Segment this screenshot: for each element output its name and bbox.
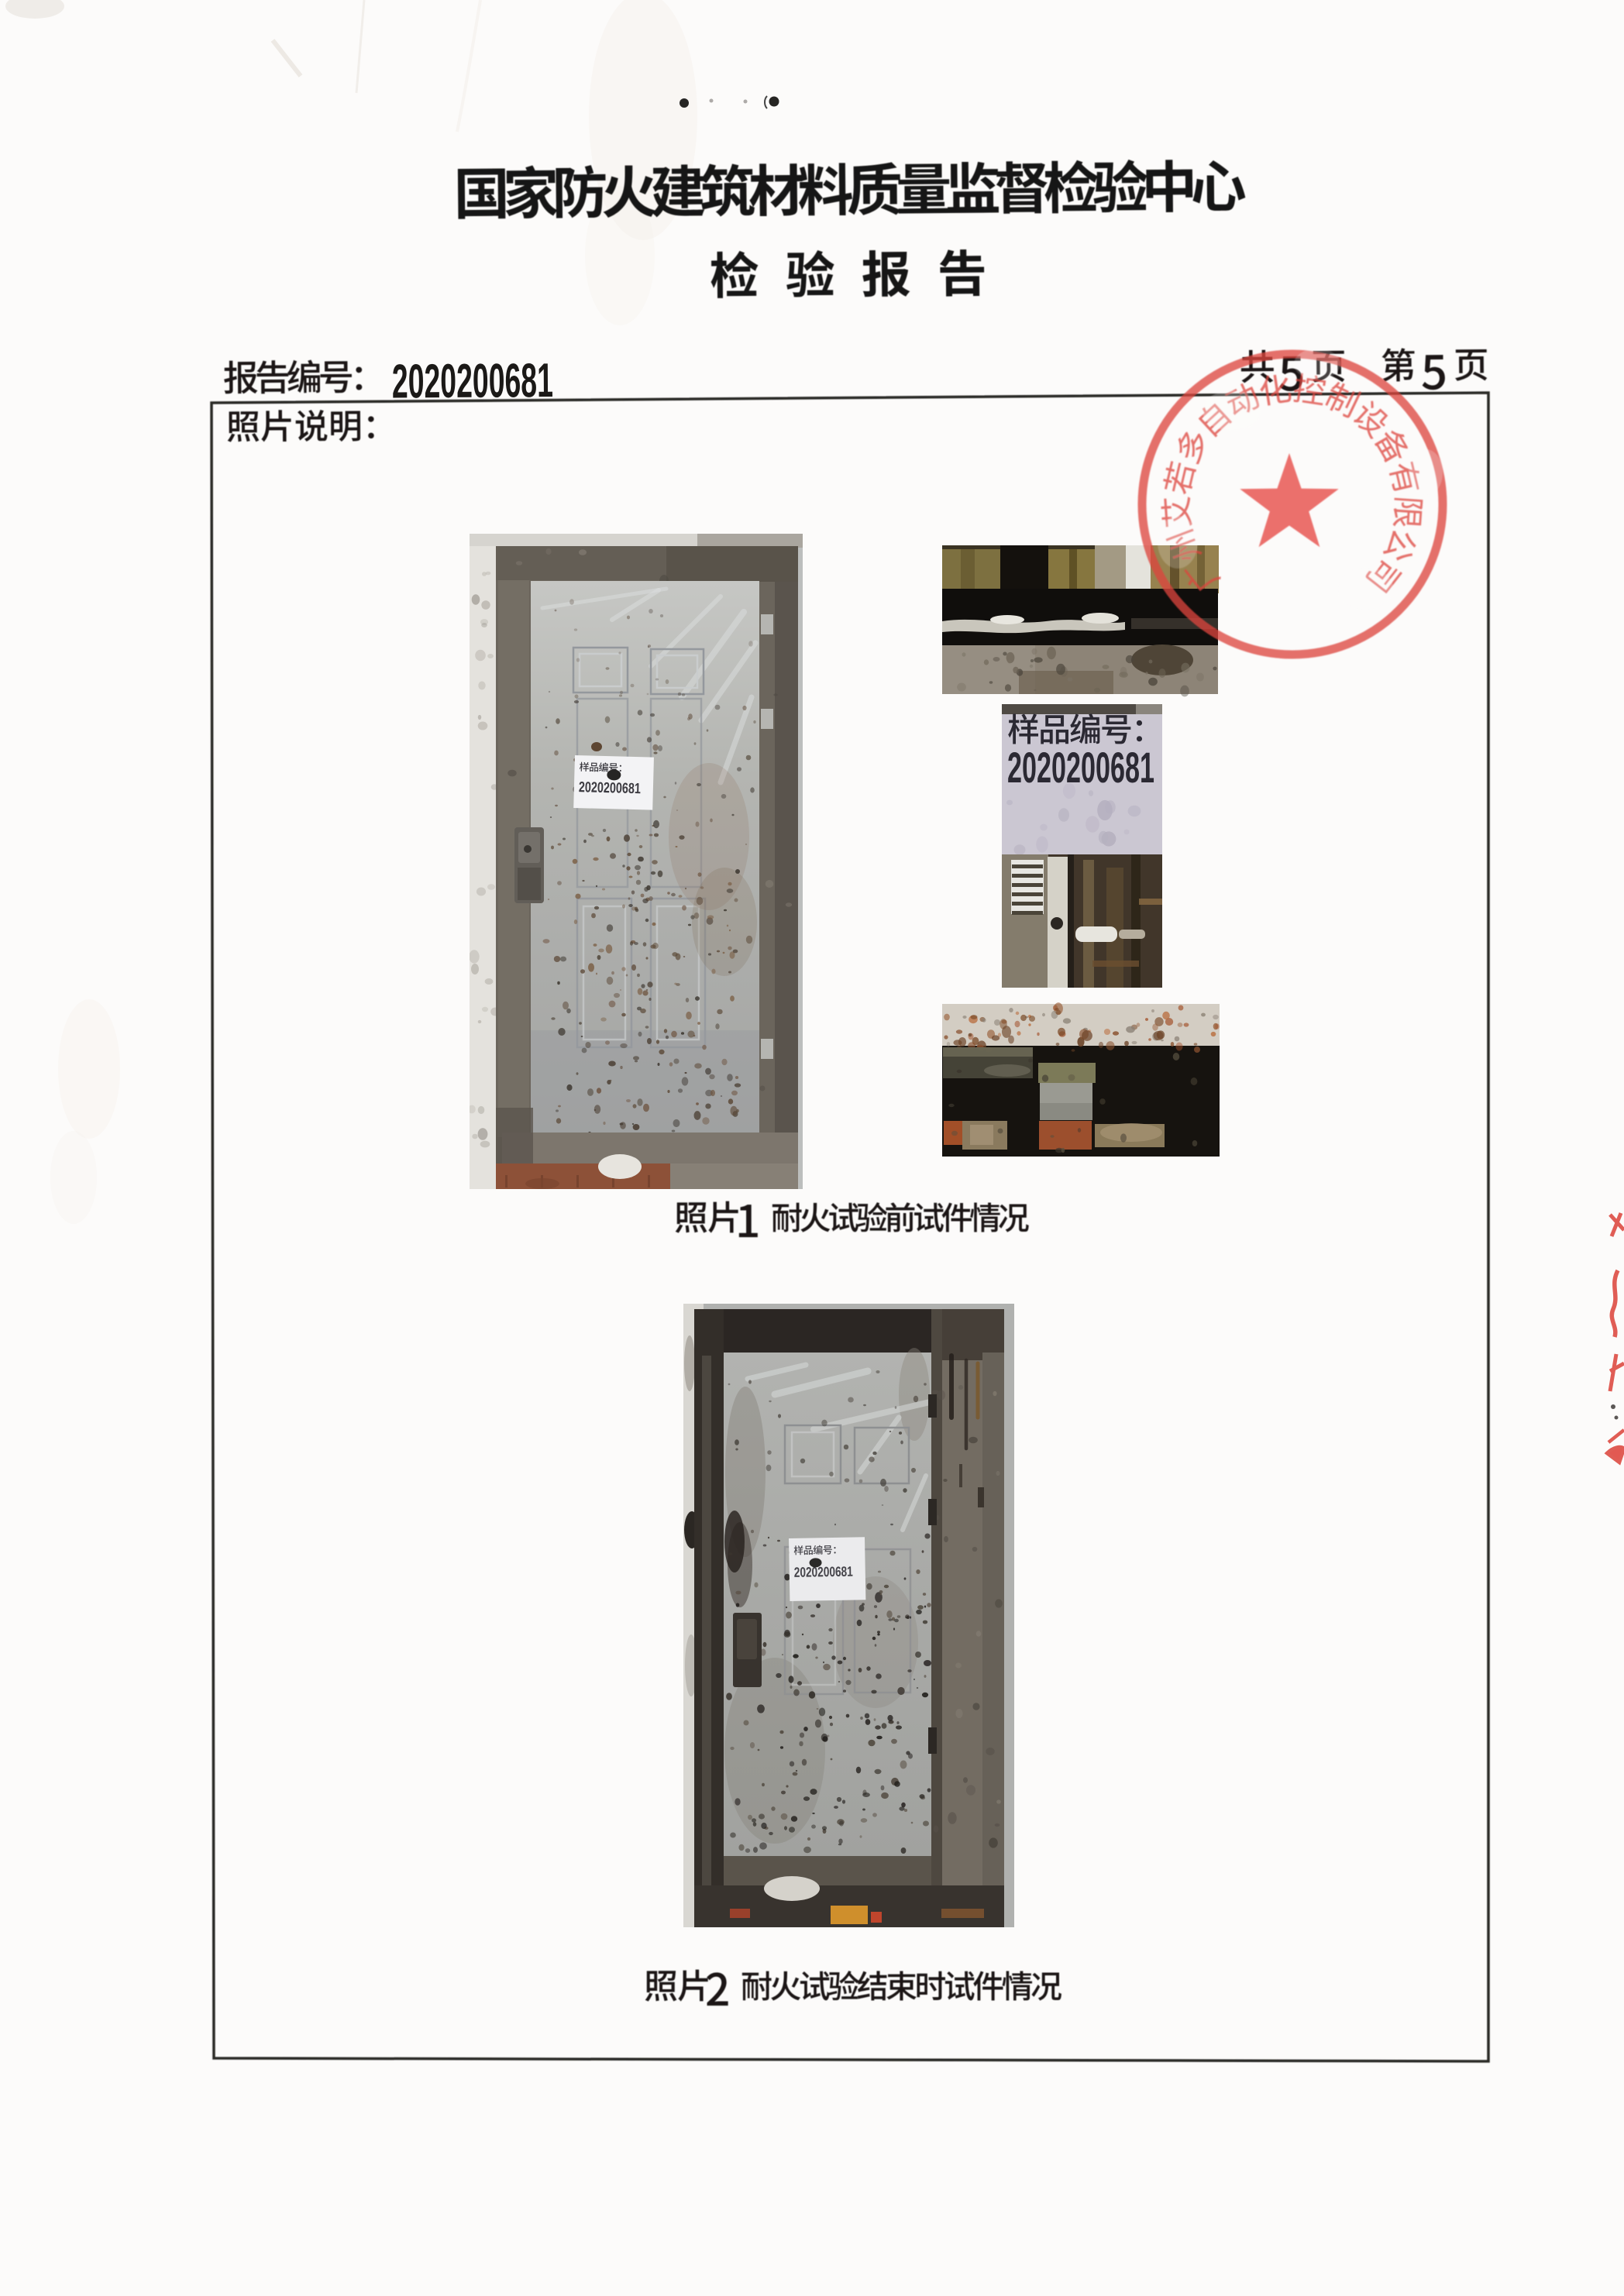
svg-text:2020200681: 2020200681: [579, 779, 642, 797]
svg-text:2020200681: 2020200681: [794, 1564, 853, 1580]
svg-text:2020200681: 2020200681: [1007, 743, 1154, 792]
